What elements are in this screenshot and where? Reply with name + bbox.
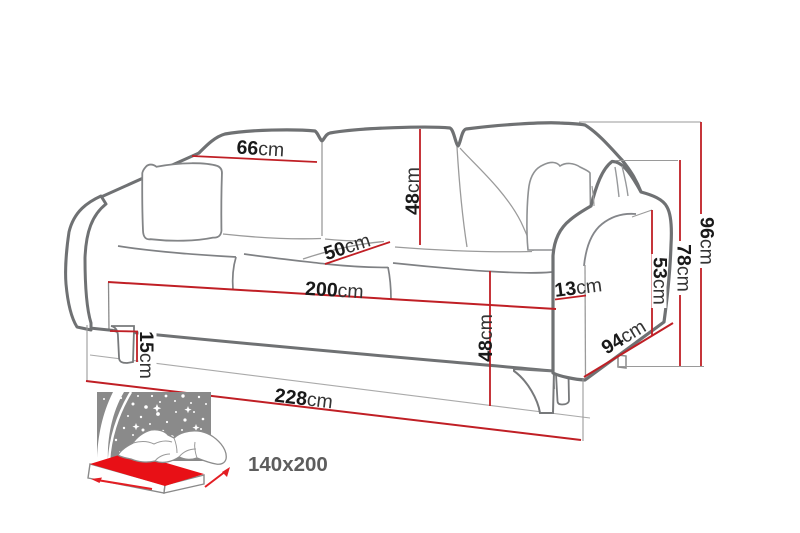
- svg-text:66cm: 66cm: [236, 137, 285, 162]
- svg-text:48cm: 48cm: [475, 314, 497, 362]
- svg-text:200cm: 200cm: [304, 278, 364, 304]
- svg-text:140x200: 140x200: [248, 453, 328, 476]
- svg-text:78cm: 78cm: [673, 244, 695, 292]
- svg-text:53cm: 53cm: [649, 257, 671, 305]
- svg-text:48cm: 48cm: [402, 167, 424, 215]
- svg-text:96cm: 96cm: [696, 217, 718, 265]
- svg-text:15cm: 15cm: [135, 331, 157, 379]
